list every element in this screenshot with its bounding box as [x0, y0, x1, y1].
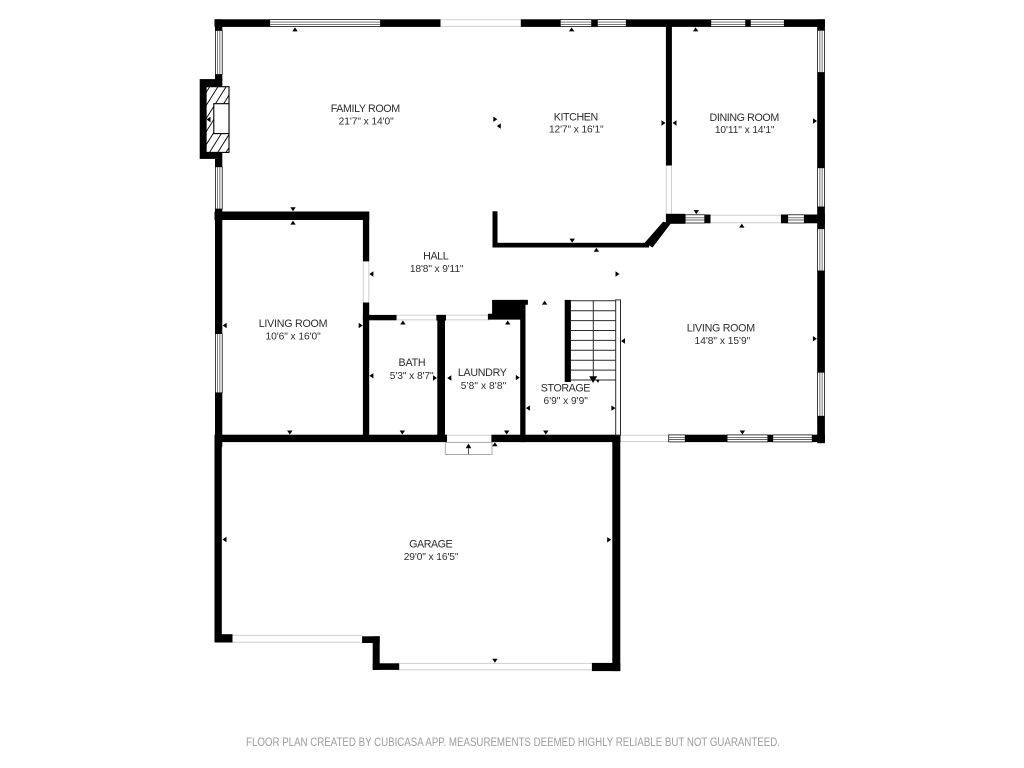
svg-text:GARAGE: GARAGE — [409, 538, 453, 550]
svg-text:29'0" x 16'5": 29'0" x 16'5" — [404, 552, 459, 563]
svg-text:BATH: BATH — [399, 357, 426, 369]
svg-text:LIVING ROOM: LIVING ROOM — [259, 318, 328, 330]
svg-text:FLOOR PLAN CREATED BY CUBICASA: FLOOR PLAN CREATED BY CUBICASA APP. MEAS… — [246, 736, 780, 749]
svg-text:FAMILY ROOM: FAMILY ROOM — [331, 103, 400, 115]
svg-text:HALL: HALL — [423, 251, 449, 263]
svg-text:18'8" x 9'11": 18'8" x 9'11" — [410, 264, 464, 275]
svg-text:DINING ROOM: DINING ROOM — [710, 112, 780, 124]
svg-text:STORAGE: STORAGE — [541, 383, 591, 395]
svg-text:LAUNDRY: LAUNDRY — [458, 367, 507, 379]
svg-text:6'9" x 9'9": 6'9" x 9'9" — [544, 396, 589, 407]
svg-text:10'6" x 16'0": 10'6" x 16'0" — [266, 331, 322, 342]
svg-text:LIVING ROOM: LIVING ROOM — [687, 323, 755, 335]
svg-text:5'3" x 8'7": 5'3" x 8'7" — [390, 371, 434, 382]
svg-text:KITCHEN: KITCHEN — [554, 112, 599, 124]
svg-text:12'7" x 16'1": 12'7" x 16'1" — [549, 124, 604, 135]
svg-text:14'8" x 15'9": 14'8" x 15'9" — [695, 336, 751, 347]
svg-text:21'7" x 14'0": 21'7" x 14'0" — [339, 116, 394, 127]
svg-text:5'8" x 8'8": 5'8" x 8'8" — [461, 381, 507, 392]
svg-text:10'11" x 14'1": 10'11" x 14'1" — [715, 125, 775, 136]
